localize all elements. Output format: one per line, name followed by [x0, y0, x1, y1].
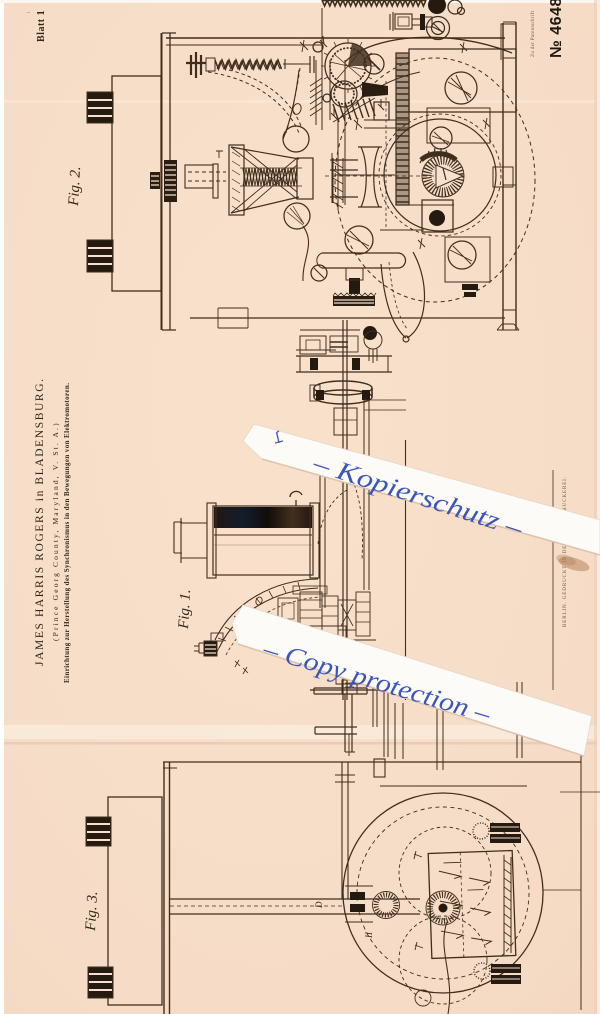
svg-text:Fig. 3.: Fig. 3. — [83, 891, 101, 932]
svg-text:D: D — [314, 901, 324, 909]
svg-text:Blatt 1: Blatt 1 — [36, 10, 47, 42]
svg-text:BERLIN. GEDRUCKT IN DER REICHS: BERLIN. GEDRUCKT IN DER REICHSDRUCKEREI. — [563, 477, 568, 627]
svg-text:(Prince Georg County, Maryland: (Prince Georg County, Maryland, V. St. A… — [51, 423, 60, 641]
svg-text:II: II — [364, 931, 374, 939]
svg-text:Zu der Patentschrift: Zu der Patentschrift — [531, 10, 536, 57]
svg-text:Fig. 2.: Fig. 2. — [66, 166, 84, 207]
svg-text:Einrichtung zur Herstellung de: Einrichtung zur Herstellung des Synchron… — [63, 383, 71, 683]
svg-text:JAMES HARRIS ROGERS in BLADENS: JAMES HARRIS ROGERS in BLADENSBURG. — [34, 378, 46, 666]
svg-text:№ 46486: № 46486 — [548, 0, 565, 58]
svg-text:Fig. 1.: Fig. 1. — [176, 589, 194, 630]
